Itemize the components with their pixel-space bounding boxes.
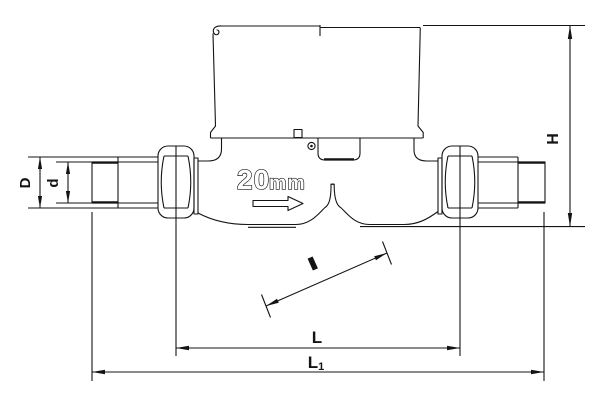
left-union-nut bbox=[158, 146, 194, 218]
dim-L1-arrow-left-icon bbox=[92, 370, 105, 374]
diagonal-arrow-upper-icon bbox=[374, 253, 387, 260]
right-nut-facet-arc-left bbox=[445, 156, 448, 208]
body-bottom-outline bbox=[198, 184, 438, 224]
diagonal-tick-upper bbox=[383, 242, 392, 265]
dimension-L1: L1 bbox=[92, 212, 544, 381]
seal-screw-icon bbox=[308, 142, 315, 149]
diagonal-tick-lower bbox=[262, 295, 271, 318]
dim-d-arrow-up-icon bbox=[66, 162, 70, 174]
diagonal-dim-line bbox=[266, 253, 387, 306]
body-neck-left bbox=[198, 138, 222, 161]
body-neck-right bbox=[414, 138, 438, 161]
dim-L1-label: L1 bbox=[308, 353, 325, 373]
left-flange-collar bbox=[194, 158, 198, 214]
size-marking: 20 mm bbox=[237, 164, 306, 211]
left-nut-facet-arc-right bbox=[188, 156, 191, 208]
dimension-D: D bbox=[17, 157, 42, 208]
right-flange-collar bbox=[438, 158, 442, 214]
dim-d-label: d bbox=[45, 178, 62, 187]
technical-drawing-canvas: 20 mm bbox=[0, 0, 603, 415]
dimension-H: H bbox=[423, 26, 585, 227]
dim-H-arrow-down-icon bbox=[568, 213, 572, 227]
dim-L-label: L bbox=[312, 328, 322, 347]
size-marking-unit: mm bbox=[269, 172, 306, 194]
dim-L1-label-base: L bbox=[308, 353, 318, 372]
diagonal-arrow-lower-icon bbox=[266, 299, 279, 306]
dim-H-label: H bbox=[545, 133, 562, 145]
register-cap bbox=[211, 25, 424, 160]
right-nut-facet-arc-right bbox=[472, 156, 475, 208]
dim-d-arrow-down-icon bbox=[66, 191, 70, 203]
dim-D-arrow-up-icon bbox=[38, 157, 42, 169]
latch-notch bbox=[294, 130, 302, 138]
dim-L-arrow-left-icon bbox=[176, 346, 189, 350]
right-tailpiece bbox=[478, 157, 545, 208]
dim-D-arrow-down-icon bbox=[38, 196, 42, 208]
dim-L1-arrow-right-icon bbox=[531, 370, 544, 374]
size-marking-value: 20 bbox=[237, 164, 270, 195]
dimension-d: d bbox=[45, 162, 70, 203]
sealing-lug-block bbox=[318, 138, 360, 160]
cap-left-edge bbox=[211, 34, 216, 139]
left-nut-facet-arc-left bbox=[161, 156, 164, 208]
dim-L-arrow-right-icon bbox=[447, 346, 460, 350]
dim-L1-label-subscript: 1 bbox=[318, 361, 324, 373]
dimension-L: L bbox=[176, 218, 460, 356]
dim-H-arrow-up-icon bbox=[568, 26, 572, 40]
dim-D-label: D bbox=[17, 177, 34, 188]
water-meter-drawing: 20 mm bbox=[0, 0, 603, 415]
flow-direction-arrow-icon bbox=[253, 197, 303, 211]
diagonal-dimension bbox=[262, 242, 392, 318]
illegible-stamp-mark-icon bbox=[308, 256, 318, 270]
lid-hinge-curl-icon bbox=[213, 26, 222, 35]
cap-right-edge bbox=[418, 28, 423, 139]
right-union-nut bbox=[442, 146, 478, 218]
